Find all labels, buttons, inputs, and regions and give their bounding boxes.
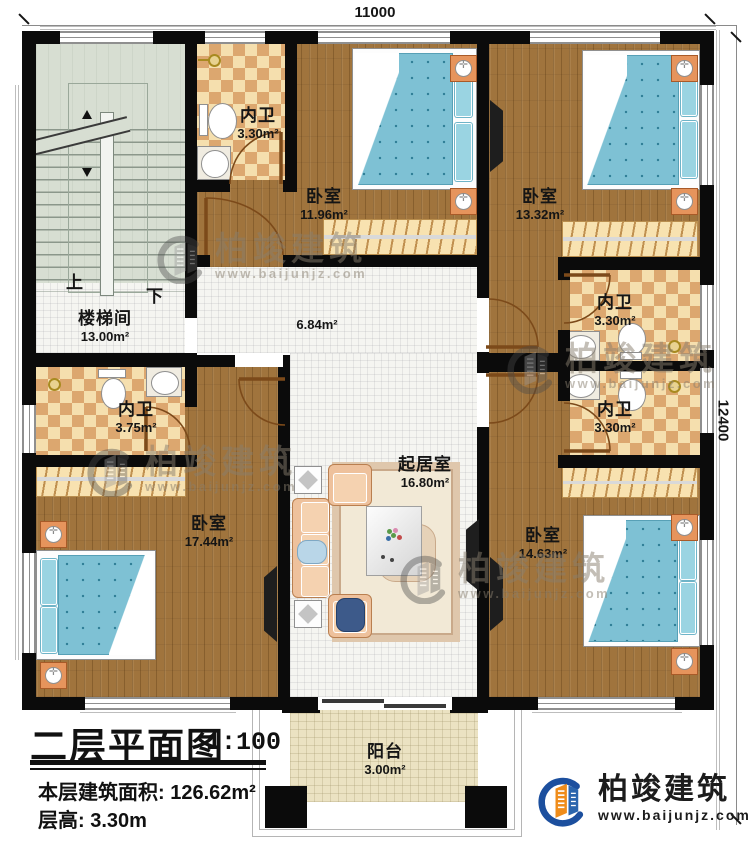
wardrobe <box>562 467 698 498</box>
sill-line <box>40 29 716 30</box>
armchair <box>328 464 372 506</box>
wall <box>558 371 570 401</box>
tv-icon <box>490 100 503 172</box>
dimension-height: 12400 <box>715 390 732 452</box>
window <box>700 285 714 350</box>
side-table <box>294 466 322 494</box>
dimension-tick <box>704 13 715 24</box>
room-label-bath-left: 内卫3.75m² <box>91 400 181 436</box>
brand-footer: 柏竣建筑 www.baijunjz.com <box>536 772 750 828</box>
bed <box>36 550 156 660</box>
dimension-tick <box>18 13 29 24</box>
sink-icon <box>201 150 229 178</box>
window <box>205 31 265 44</box>
plan-scale: 1:100 <box>206 728 281 757</box>
room-label-bedroom-top-right: 卧室13.32m² <box>495 187 585 223</box>
wall <box>185 192 197 318</box>
tv-icon <box>264 566 277 642</box>
sink-icon <box>151 371 179 395</box>
wardrobe <box>323 219 477 255</box>
room-label-bath-right-upper: 内卫3.30m² <box>570 293 660 329</box>
nightstand <box>450 188 477 215</box>
wardrobe <box>562 221 698 257</box>
wall <box>700 31 714 85</box>
room-label-bath-top-left: 内卫3.30m² <box>213 106 303 142</box>
wall <box>558 330 570 361</box>
door-arc <box>200 196 286 260</box>
wall <box>675 697 714 710</box>
window <box>700 540 714 645</box>
sink-icon <box>566 335 596 359</box>
wall <box>477 267 489 298</box>
shower-hose <box>198 59 210 61</box>
flower-decor <box>391 533 396 538</box>
tv-icon <box>490 557 503 631</box>
sill-line <box>40 26 716 27</box>
nightstand <box>40 521 67 548</box>
dimension-width: 11000 <box>330 4 420 21</box>
room-label-bedroom-top-left: 卧室11.96m² <box>279 187 369 223</box>
cups-decor <box>381 555 385 559</box>
sink-icon <box>566 374 596 398</box>
wall <box>700 350 714 368</box>
wall <box>477 352 489 373</box>
door-arc <box>483 371 541 425</box>
door-arc <box>483 297 541 351</box>
sill-line <box>15 85 16 660</box>
brand-url: www.baijunjz.com <box>598 805 750 826</box>
nightstand <box>671 514 698 541</box>
stair-down-label: 下 <box>146 282 163 307</box>
wall <box>22 453 36 553</box>
wall <box>197 180 230 192</box>
wall <box>22 31 36 405</box>
stair-railing <box>100 112 114 296</box>
wall <box>489 353 558 372</box>
window <box>530 31 660 44</box>
wall <box>283 355 290 367</box>
wall <box>558 361 700 371</box>
dimension-line-right <box>736 25 737 825</box>
shower-head-icon <box>668 340 681 353</box>
room-label-bedroom-bottom-right: 卧室14.63m² <box>498 526 588 562</box>
door-arc <box>237 377 289 429</box>
wall <box>197 355 235 367</box>
stair-up-label: 上 <box>66 268 83 293</box>
room-label-bath-right-lower: 内卫3.30m² <box>570 400 660 436</box>
wall <box>558 455 714 468</box>
floor-plan-canvas: 11000 12400 <box>0 0 750 844</box>
nightstand <box>40 662 67 689</box>
wall <box>185 367 197 407</box>
sliding-door-panel <box>384 704 446 708</box>
wall <box>265 31 318 44</box>
balcony-pillar <box>265 786 307 828</box>
dimension-line-top <box>22 25 736 26</box>
toilet-icon <box>620 352 642 360</box>
wall <box>700 185 714 285</box>
title-underline <box>30 760 266 765</box>
sliding-door-panel <box>322 699 384 703</box>
wall <box>22 697 85 710</box>
tv-icon <box>466 519 479 591</box>
stair-arrow-icon <box>82 168 92 177</box>
sill-line <box>532 712 682 713</box>
side-table <box>294 600 322 628</box>
coffee-table <box>366 506 422 576</box>
room-label-balcony: 阳台3.00m² <box>340 742 430 778</box>
balcony-pillar <box>282 699 320 713</box>
brand-logo-icon <box>536 772 588 828</box>
wall <box>36 353 197 367</box>
window <box>85 697 230 710</box>
window <box>22 405 36 453</box>
shower-head-icon <box>668 380 681 393</box>
nightstand <box>671 55 698 82</box>
room-label-bedroom-bottom-left: 卧室17.44m² <box>164 514 254 550</box>
wall <box>700 433 714 540</box>
corridor-floor <box>197 267 477 353</box>
window <box>700 85 714 185</box>
floor-height-text: 层高: 3.30m <box>38 804 147 833</box>
room-label-living-room: 起居室16.80m² <box>380 455 470 491</box>
shower-head-icon <box>48 378 61 391</box>
room-label-corridor: 6.84m² <box>277 317 357 333</box>
toilet-icon <box>620 371 642 379</box>
wall <box>185 44 197 192</box>
person-figure <box>297 540 327 564</box>
toilet-icon <box>199 104 208 136</box>
balcony-pillar <box>465 786 507 828</box>
window <box>700 368 714 433</box>
balcony-pillar <box>450 699 488 713</box>
wall <box>450 31 530 44</box>
wall <box>477 44 489 267</box>
floor-area-text: 本层建筑面积: 126.62m² <box>38 776 256 805</box>
window <box>538 697 675 710</box>
sill-line <box>18 85 19 660</box>
room-label-stairwell: 楼梯间13.00m² <box>60 309 150 345</box>
nightstand <box>671 188 698 215</box>
nightstand <box>450 55 477 82</box>
wall <box>153 31 205 44</box>
wall <box>558 257 714 270</box>
wall <box>283 255 489 267</box>
window <box>22 553 36 653</box>
window <box>60 31 153 44</box>
title-underline-thin <box>30 768 266 770</box>
brand-name: 柏竣建筑 <box>598 775 750 805</box>
person-figure <box>336 598 365 632</box>
toilet-icon <box>98 369 126 378</box>
sill-line <box>80 712 236 713</box>
stair-arrow-icon <box>82 110 92 119</box>
nightstand <box>671 648 698 675</box>
window <box>318 31 450 44</box>
